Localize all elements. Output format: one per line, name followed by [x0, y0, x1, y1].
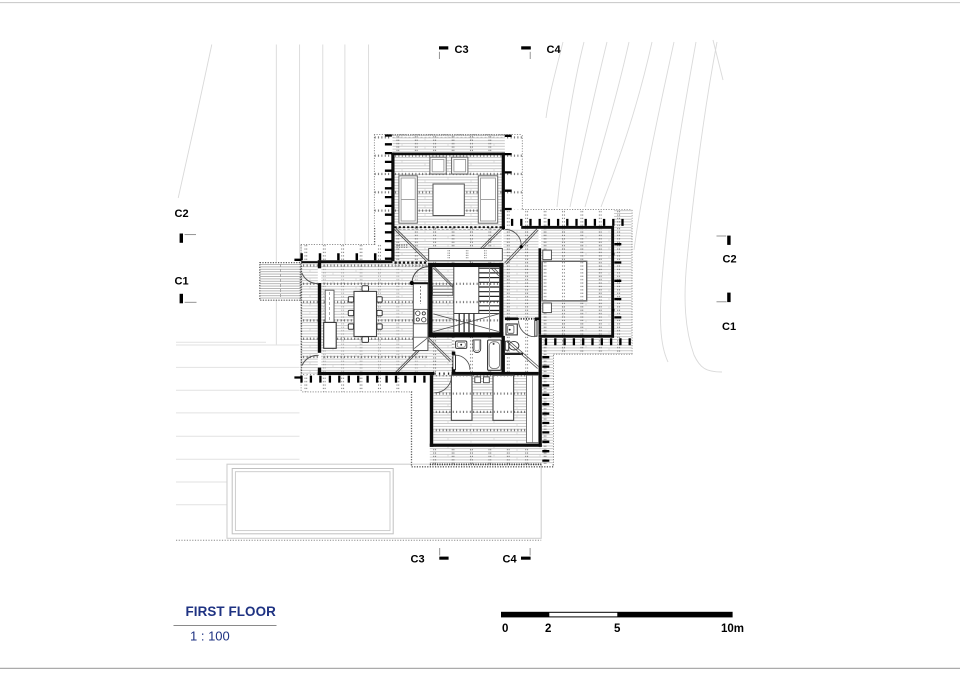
svg-text:C1: C1 [175, 276, 189, 288]
svg-text:C4: C4 [547, 44, 562, 56]
svg-text:C3: C3 [411, 554, 425, 566]
svg-text:10m: 10m [721, 623, 744, 635]
svg-text:C1: C1 [722, 321, 736, 333]
svg-text:C2: C2 [723, 254, 737, 266]
svg-text:C3: C3 [455, 44, 469, 56]
svg-text:2: 2 [545, 623, 551, 635]
svg-text:C2: C2 [175, 208, 189, 220]
svg-text:FIRST FLOOR: FIRST FLOOR [186, 604, 277, 619]
svg-text:0: 0 [502, 623, 508, 635]
svg-text:5: 5 [614, 623, 621, 635]
svg-text:C4: C4 [503, 554, 518, 566]
svg-text:1 : 100: 1 : 100 [190, 629, 230, 644]
